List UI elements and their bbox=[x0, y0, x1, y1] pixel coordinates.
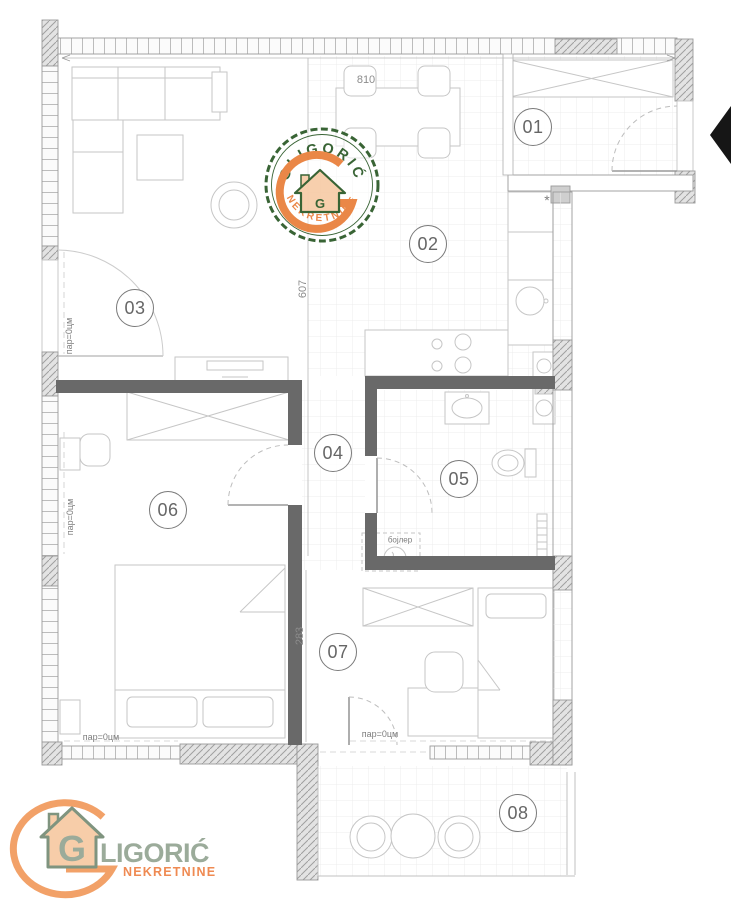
annotation-label: пар=0цм bbox=[65, 499, 75, 536]
room-label-06: 06 bbox=[149, 491, 187, 529]
room-label-01: 01 bbox=[514, 108, 552, 146]
room-label-08: 08 bbox=[499, 794, 537, 832]
dimension-label: 810 bbox=[357, 74, 375, 86]
dimension-label: 283 bbox=[294, 627, 306, 645]
annotation-label: пар=0цм bbox=[362, 729, 399, 739]
annotation-label: пар=0цм bbox=[64, 318, 74, 355]
dimension-label: 607 bbox=[297, 280, 309, 298]
annotation-label: * bbox=[544, 192, 549, 208]
annotation-label: бојлер bbox=[388, 536, 412, 545]
room-label-04: 04 bbox=[314, 434, 352, 472]
room-label-03: 03 bbox=[116, 289, 154, 327]
room-label-05: 05 bbox=[440, 460, 478, 498]
labels-overlay: 0102030405060708810607283пар=0цмпар=0цмп… bbox=[0, 0, 731, 900]
floor-plan-canvas: GLIGORIĆ NEKRETNINE G G LIGORIĆ NEKRETNI… bbox=[0, 0, 731, 900]
room-label-07: 07 bbox=[319, 633, 357, 671]
room-label-02: 02 bbox=[409, 225, 447, 263]
annotation-label: пар=0цм bbox=[83, 732, 120, 742]
